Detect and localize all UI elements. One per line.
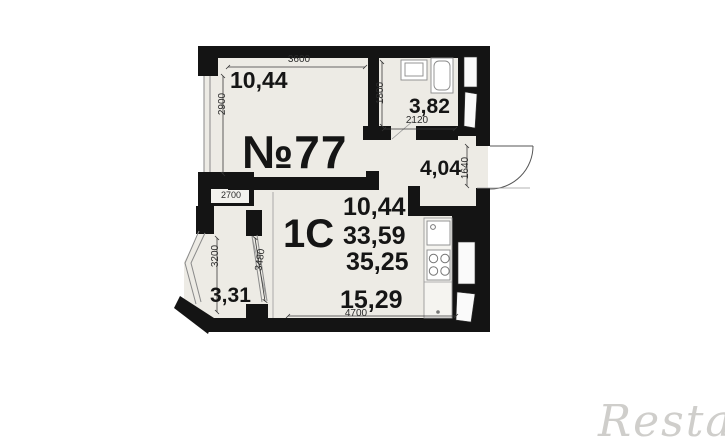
dim-bathroom-width: 2120	[397, 116, 437, 126]
area-summary-2: 33,59	[343, 224, 406, 249]
dim-entry-width: 1640	[461, 148, 471, 188]
dim-bedroom-width: 3600	[279, 55, 319, 65]
watermark-text: Restate	[598, 396, 725, 444]
balcony-area-label: 3,31	[210, 285, 251, 306]
hallway-area-label: 4,04	[420, 158, 461, 179]
bathtub-icon	[431, 58, 453, 93]
area-summary-3: 35,25	[346, 250, 409, 275]
kitchen-sink-icon	[427, 221, 450, 245]
bathroom-sink-icon	[401, 60, 427, 80]
dim-bathroom-depth: 1800	[376, 73, 386, 113]
apartment-type-label: 1C	[283, 214, 334, 254]
dim-bedroom-depth: 2900	[218, 84, 228, 124]
dim-balcony-depth: 3200	[211, 236, 221, 276]
dim-balcony-width: 2700	[212, 191, 250, 200]
bathroom-area-label: 3,82	[409, 96, 450, 117]
stove-icon	[427, 250, 450, 280]
floorplan-page: №77 1C 10,44 33,59 35,25 10,44 3,82 4,04…	[0, 0, 725, 444]
area-summary-1: 10,44	[343, 195, 406, 220]
bedroom-area-label: 10,44	[230, 69, 288, 92]
dim-living-width: 4700	[336, 309, 376, 319]
cabinet-knob-icon	[436, 310, 440, 314]
apartment-number-label: №77	[242, 129, 347, 175]
